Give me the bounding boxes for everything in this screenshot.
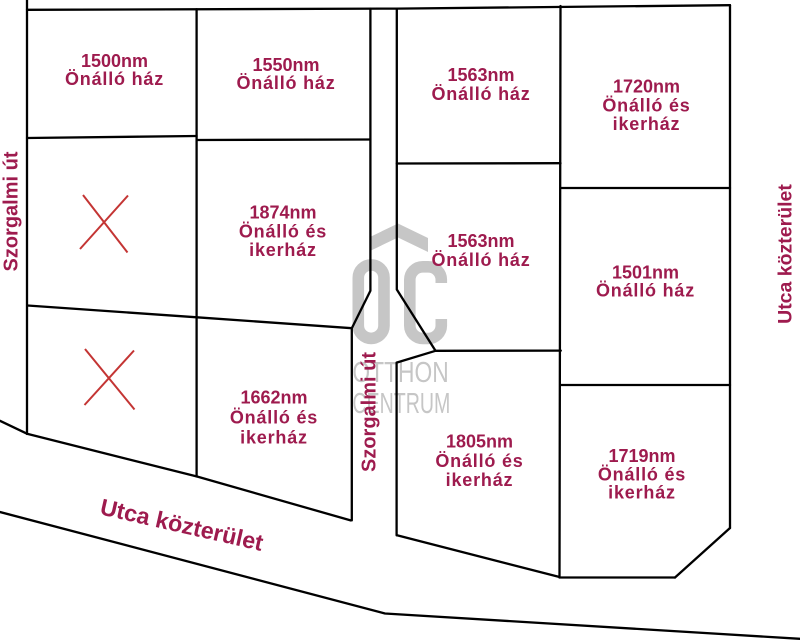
svg-text:Önálló és: Önálló és (598, 465, 686, 485)
svg-text:Önálló ház: Önálló ház (431, 250, 530, 270)
svg-text:ikerház: ikerház (608, 483, 676, 503)
svg-text:ikerház: ikerház (613, 114, 681, 134)
svg-text:1720nm: 1720nm (613, 77, 680, 97)
svg-text:Utca közterület: Utca közterület (775, 184, 797, 324)
svg-text:1500nm: 1500nm (81, 51, 148, 71)
svg-text:Szorgalmi út: Szorgalmi út (1, 151, 23, 271)
svg-text:ikerház: ikerház (249, 240, 317, 260)
svg-text:Önálló ház: Önálló ház (236, 73, 335, 93)
svg-text:1563nm: 1563nm (447, 231, 514, 251)
svg-text:Szorgalmi út: Szorgalmi út (359, 352, 381, 472)
svg-text:1874nm: 1874nm (249, 203, 316, 223)
svg-text:Önálló ház: Önálló ház (65, 69, 164, 89)
svg-text:Önálló és: Önálló és (602, 96, 690, 116)
svg-text:Önálló ház: Önálló ház (431, 84, 530, 104)
svg-text:1550nm: 1550nm (252, 55, 319, 75)
svg-text:ikerház: ikerház (446, 470, 514, 490)
svg-text:Önálló és: Önálló és (239, 222, 327, 242)
svg-text:1563nm: 1563nm (447, 65, 514, 85)
svg-text:Önálló és: Önálló és (435, 451, 523, 471)
svg-text:ikerház: ikerház (240, 428, 308, 448)
svg-text:Önálló és: Önálló és (230, 408, 318, 428)
svg-text:Önálló ház: Önálló ház (596, 281, 695, 301)
svg-text:1719nm: 1719nm (608, 446, 675, 466)
svg-text:1805nm: 1805nm (446, 432, 513, 452)
svg-text:1501nm: 1501nm (612, 263, 679, 283)
svg-text:1662nm: 1662nm (240, 388, 307, 408)
